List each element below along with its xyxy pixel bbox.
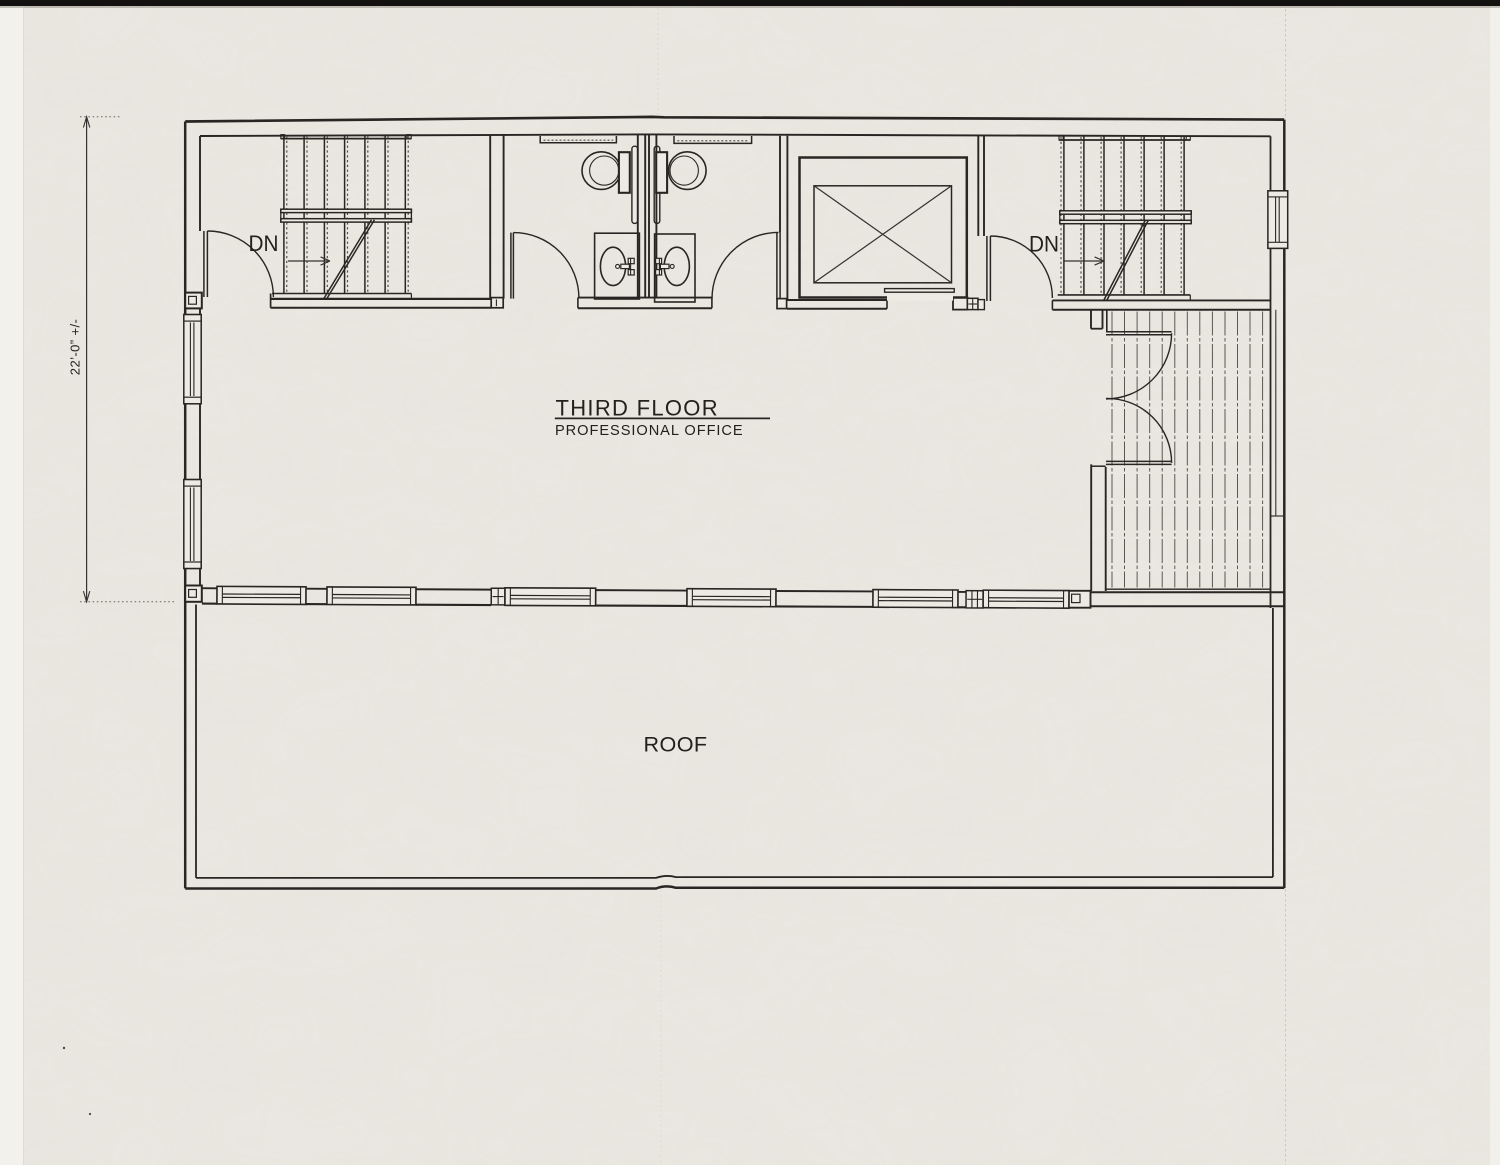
svg-text:DN: DN [249,231,279,256]
svg-text:ROOF: ROOF [644,731,708,756]
svg-text:THIRD FLOOR: THIRD FLOOR [556,395,719,420]
svg-text:DN: DN [1029,232,1059,257]
svg-text:PROFESSIONAL OFFICE: PROFESSIONAL OFFICE [555,423,744,439]
svg-text:22’-0” +/-: 22’-0” +/- [68,319,83,375]
